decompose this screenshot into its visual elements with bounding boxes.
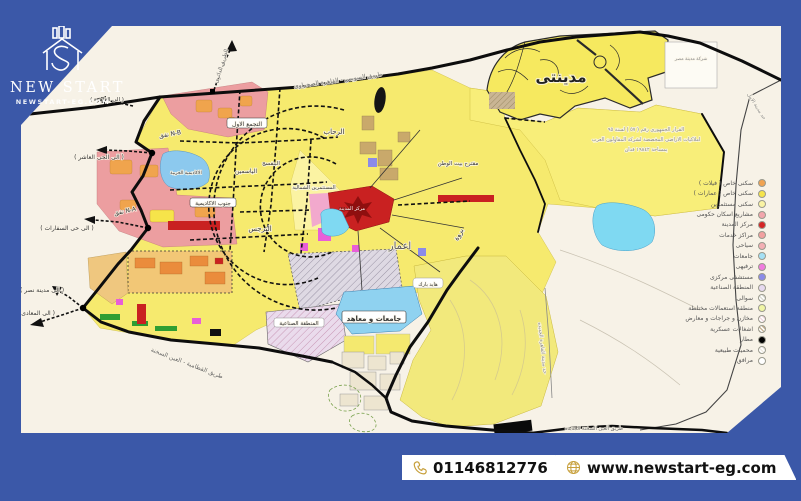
legend-item-label: سوالى [736,295,753,302]
legend-item: ترفيهى [638,262,766,272]
brand-name: NEW START [10,80,116,96]
legend-color-dot [758,273,766,281]
map-label-to-maadi: ( الى المعادى ) [17,310,55,317]
map-label-beit-watan: مقترح بيت الوطن [438,161,479,167]
legend-color-dot [758,190,766,198]
map-label-madinet-misr: شركة مدينة مصر [674,56,707,62]
legend-item: سكنى خاص ( فيلات ) [638,178,766,188]
south-yellow-block-2 [376,334,410,354]
map-label-city-center: مركز المدينة [339,206,365,212]
legend-item-label: سكنى خاص ( عمارات ) [694,190,753,197]
map-label-decree3: بمساحة ١٩٨٤٢ فدان [625,147,668,153]
legend-color-dot [758,325,766,333]
company-parcel-box [665,42,717,88]
page: NEW START NEWSTART-EG.COM [0,0,801,501]
legend-color-dot [758,336,766,344]
brand-site-url: NEWSTART-EG.COM [10,98,116,106]
legend-item: مطار [638,335,766,345]
legend-item: مشاريع اسكان حكومى [638,209,766,219]
south-yellow-block-1 [344,336,374,354]
madinaty-military-hatch [489,92,515,109]
legend-item-label: مرافق [737,357,753,364]
map-label-universities: جامعات و معاهد [347,315,402,323]
legend-color-dot [758,284,766,292]
map-label-madinaty: مدينتى [535,68,586,86]
map-label-to-nasr: ( الى مدينة نصر ) [20,287,64,294]
phone-badge[interactable]: 01146812776 [402,455,568,480]
legend-item-label: مخازن و جراجات و معارض [685,315,753,322]
map-label-decree1: القرار الجمهورى رقم ( ٥٧ ) لسنة ٩٥ [608,127,684,133]
newstart-house-icon [36,26,90,76]
map-label-mostathmereen: المستثمرين الشمالية [292,185,335,191]
legend-color-dot [758,357,766,365]
map-label-tagamoa: التجمع الاول [232,121,262,128]
legend-color-dot [758,346,766,354]
legend-color-dot [758,179,766,187]
map-label-to-embassies: ( الى حى السفارات ) [40,225,93,232]
legend-item: مرافق [638,355,766,365]
map-label-academy: الاكاديمية الحربية [170,170,201,176]
legend-item: مراكز خدمات [638,230,766,240]
legend-color-dot [758,304,766,312]
legend-color-dot [758,252,766,260]
legend-item: جامعات [638,251,766,261]
map-label-to-tenth: ( الى الحى العاشر ) [74,154,124,161]
map-label-narges: النرجس [248,225,271,233]
map-label-sokhna-road: طريق العين السخنة الجديده [565,426,623,432]
legend-color-dot [758,221,766,229]
legend-item: مخازن و جراجات و معارض [638,314,766,324]
phone-icon [412,460,427,475]
legend-item: مستشفى مركزى [638,272,766,282]
legend-item: سياحى [638,241,766,251]
legend-color-dot [758,242,766,250]
legend-item-label: سكنى خاص ( فيلات ) [699,180,753,187]
map-label-industrial: المنطقة الصناعية [279,321,319,327]
legend-item-label: سياحى [736,242,753,249]
legend-item: محميات طبيعية [638,345,766,355]
legend-item: مركز المدينة [638,220,766,230]
legend-item-label: سكنى مستثمرين [711,201,753,208]
legend-color-dot [758,315,766,323]
legend-item-label: محميات طبيعية [715,347,753,354]
map-label-banafseg: البنفسج [262,161,280,167]
legend-item-label: مركز المدينة [722,221,753,228]
legend-item: سكنى مستثمرين [638,199,766,209]
legend-item: سوالى [638,293,766,303]
legend-color-dot [758,231,766,239]
website-badge[interactable]: www.newstart-eg.com [556,455,796,480]
map-label-rehab: الرحاب [324,128,345,136]
legend-item-label: مراكز خدمات [719,232,753,239]
legend-color-dot [758,200,766,208]
legend-item-label: ترفيهى [736,263,753,270]
map-label-yasmeen: الياسمين [235,168,257,175]
website-url: www.newstart-eg.com [587,459,776,477]
map-label-decree2: املاكيات الاراضى المخصصة لشركة المقاولون… [592,137,701,143]
legend-item-label: جامعات [734,253,753,260]
legend-item-label: المنطقة الصناعية [710,284,753,291]
legend-item-label: اشغالات عسكرية [710,326,753,333]
globe-icon [566,460,581,475]
legend-item: منطقة استعمالات مختلطة [638,303,766,313]
legend-item-label: مستشفى مركزى [710,274,753,281]
map-label-emaar: اعمار [388,241,411,252]
newstart-logo: NEW START NEWSTART-EG.COM [10,26,116,106]
map-label-south-academy: جنوب الاكاديمية [195,200,231,207]
legend-item: اشغالات عسكرية [638,324,766,334]
legend-color-dot [758,211,766,219]
legend-color-dot [758,263,766,271]
legend-item-label: مطار [740,336,753,343]
phone-number: 01146812776 [433,459,548,477]
legend-item: المنطقة الصناعية [638,282,766,292]
map-legend: سكنى خاص ( فيلات )سكنى خاص ( عمارات )سكن… [638,178,766,366]
legend-item: سكنى خاص ( عمارات ) [638,188,766,198]
legend-color-dot [758,294,766,302]
legend-item-label: مشاريع اسكان حكومى [696,211,753,218]
legend-item-label: منطقة استعمالات مختلطة [688,305,753,312]
map-label-hyde-park: هايد بارك [418,282,438,288]
